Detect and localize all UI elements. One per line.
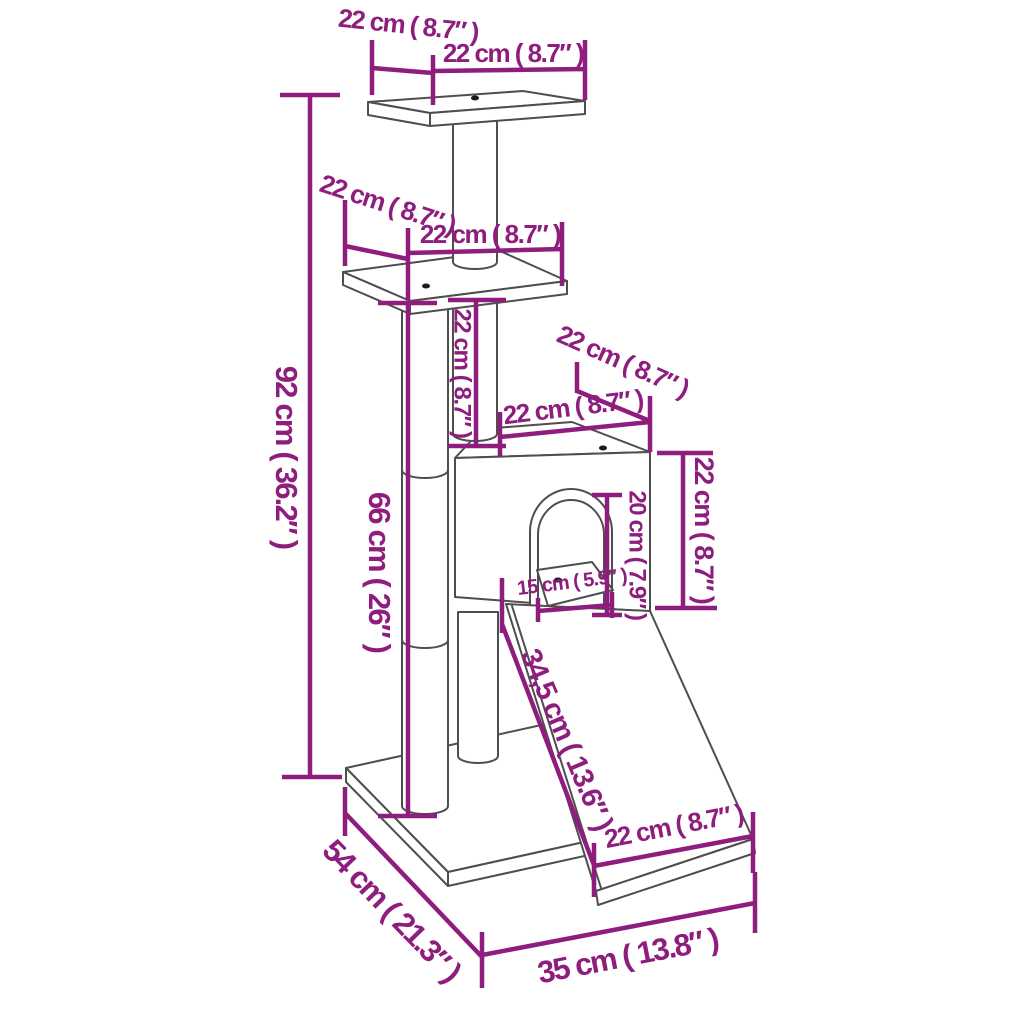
condo-support-post — [458, 612, 498, 763]
dim-condo-height: 22 cm ( 8.7″ ) — [655, 453, 719, 608]
dim-label-middle-platform-width: 22 cm ( 8.7″ ) — [420, 219, 561, 249]
dim-label-top-platform-width: 22 cm ( 8.7″ ) — [443, 38, 584, 68]
cat-tree-drawing: 22 cm ( 8.7″ ) 22 cm ( 8.7″ ) 22 cm ( 8.… — [0, 0, 1024, 1024]
screw-dot — [471, 96, 479, 101]
screw-dot — [599, 446, 607, 451]
dim-top-platform-width: 22 cm ( 8.7″ ) — [433, 38, 585, 100]
dim-label-base-width: 35 cm ( 13.8″ ) — [535, 921, 721, 990]
dimension-diagram: 22 cm ( 8.7″ ) 22 cm ( 8.7″ ) 22 cm ( 8.… — [0, 0, 1024, 1024]
dim-label-total-height: 92 cm ( 36.2″ ) — [269, 366, 304, 549]
dim-label-door-height: 20 cm ( 7.9″ ) — [624, 490, 651, 620]
dim-label-condo-height: 22 cm ( 8.7″ ) — [689, 457, 719, 604]
dim-label-left-post-height: 66 cm ( 26″ ) — [362, 492, 397, 653]
dim-label-upper-post-height: 22 cm ( 8.7″ ) — [449, 308, 476, 438]
screw-dot — [422, 284, 430, 289]
